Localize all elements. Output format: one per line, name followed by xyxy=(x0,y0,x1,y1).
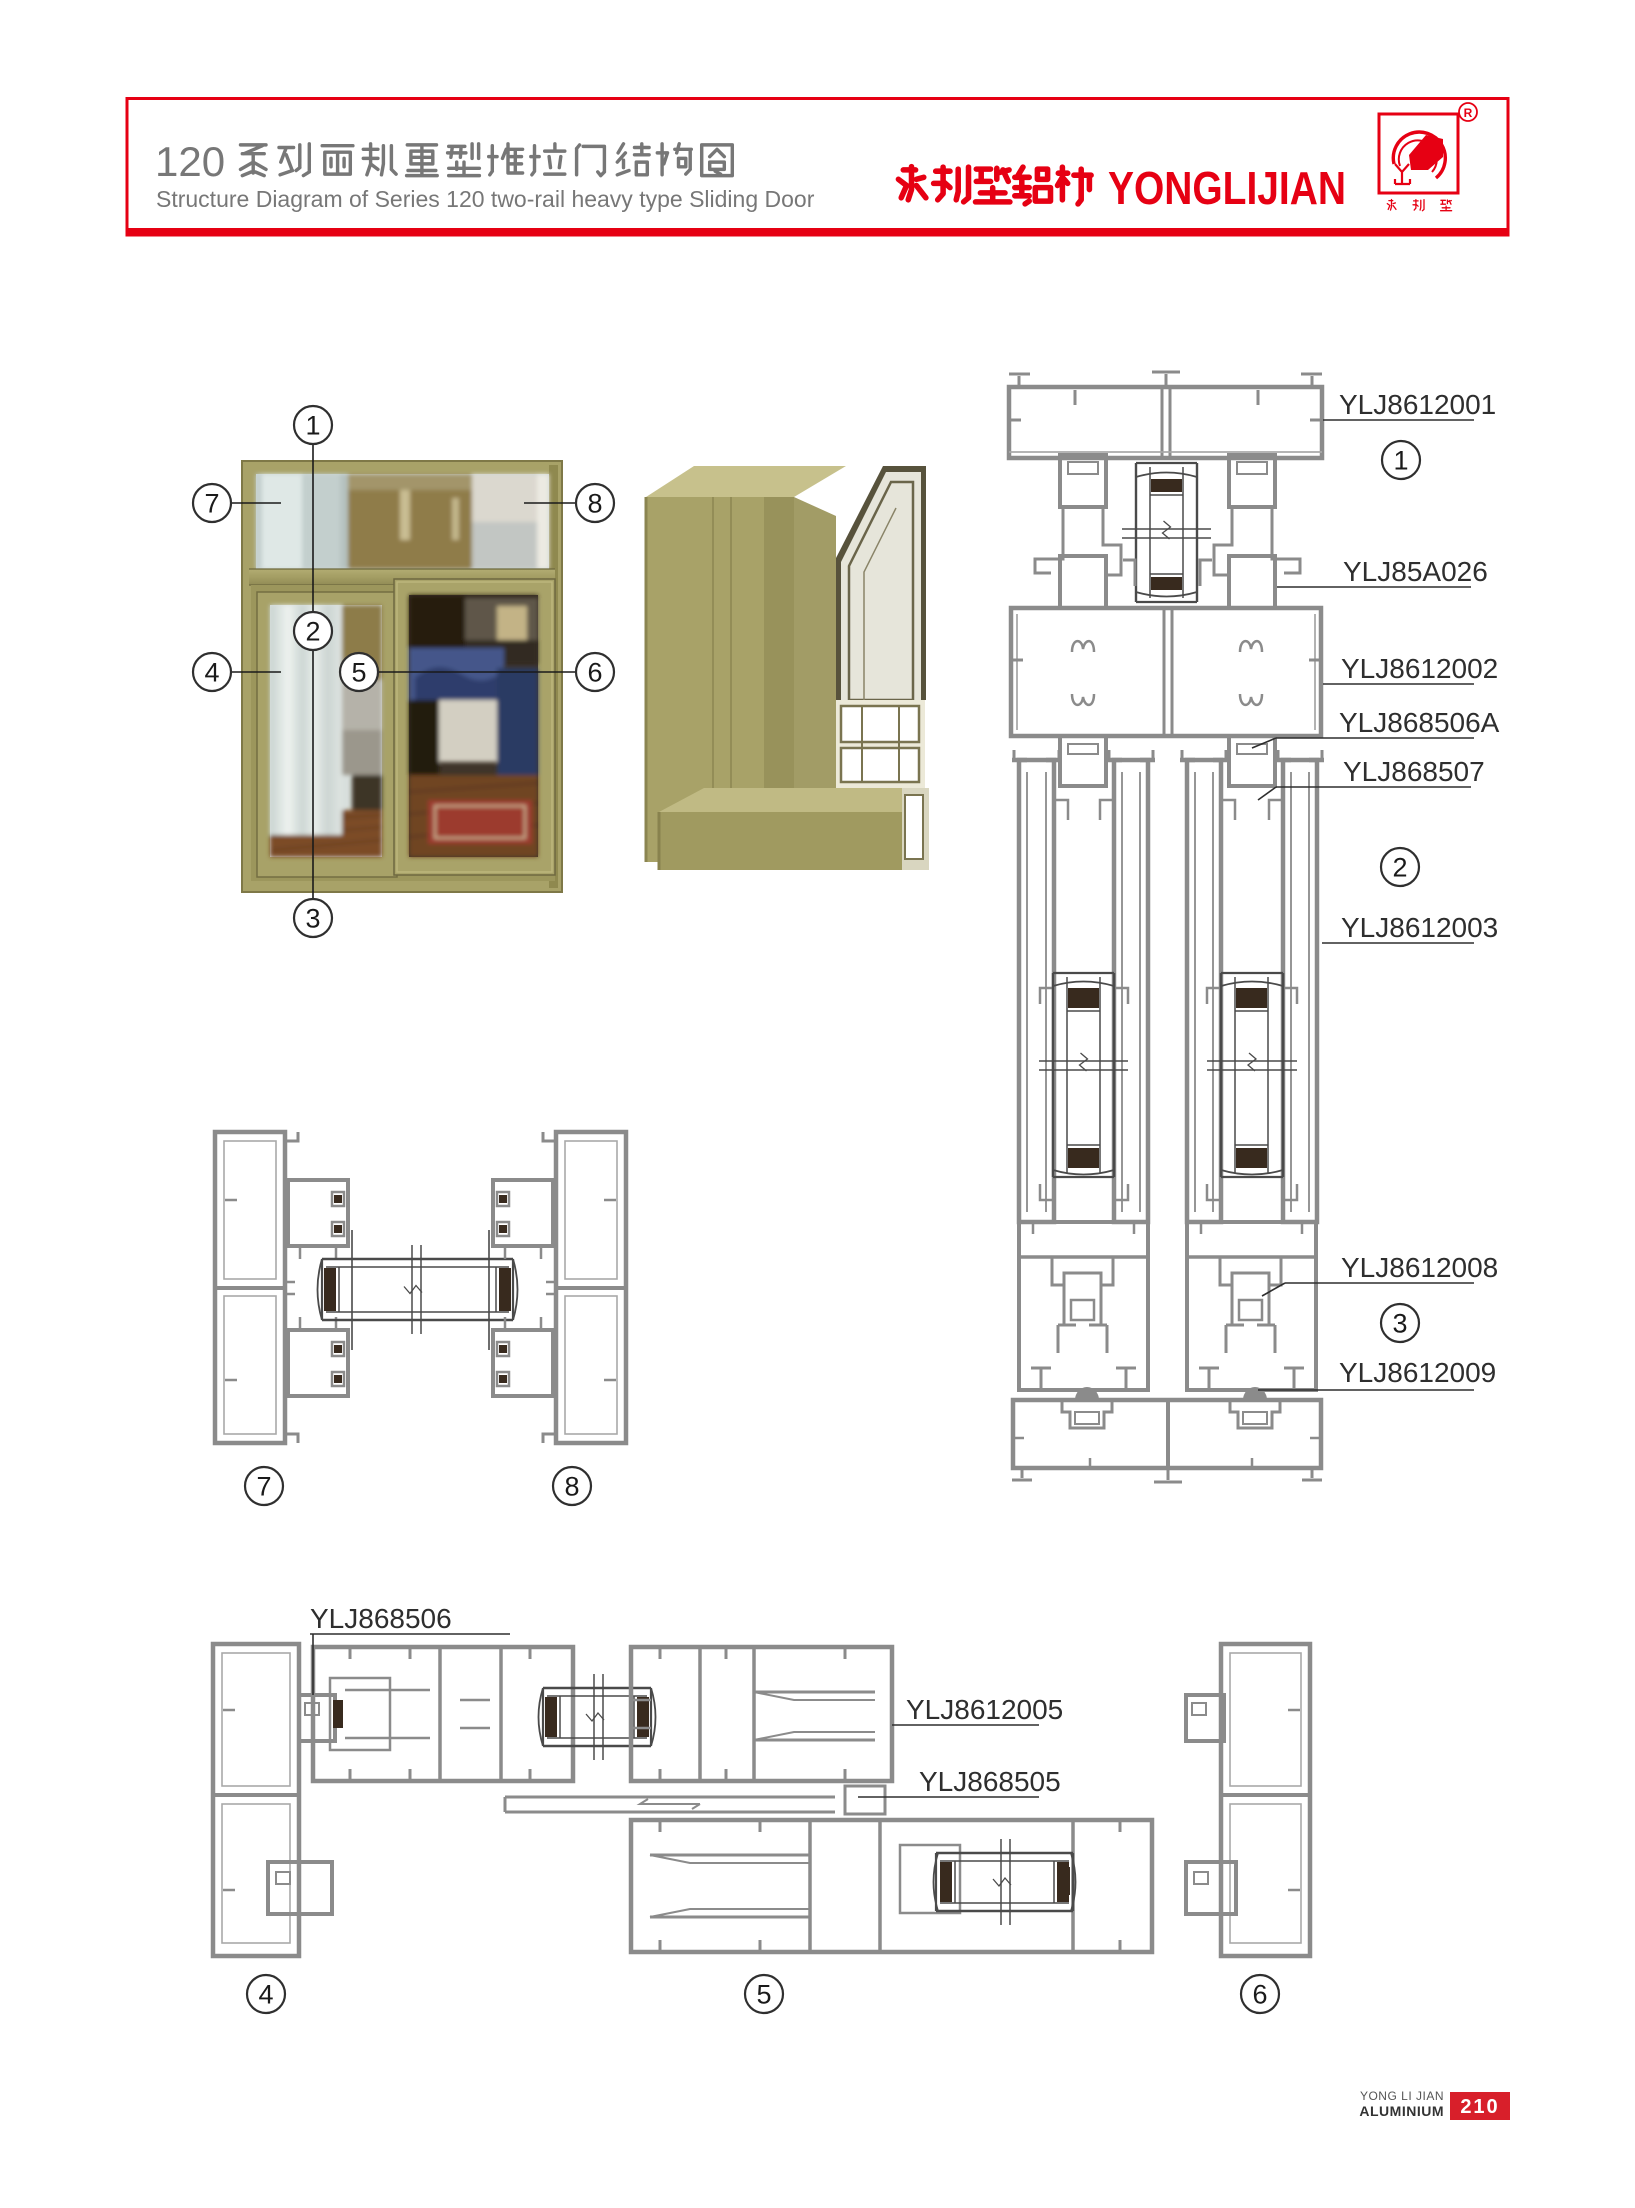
svg-text:YLJ8612003: YLJ8612003 xyxy=(1341,912,1498,943)
svg-text:YLJ85A026: YLJ85A026 xyxy=(1343,556,1488,587)
svg-text:3: 3 xyxy=(1392,1308,1407,1338)
svg-text:ALUMINIUM: ALUMINIUM xyxy=(1359,2103,1444,2119)
svg-text:YLJ8612009: YLJ8612009 xyxy=(1339,1357,1496,1388)
svg-text:5: 5 xyxy=(351,657,366,687)
svg-text:2: 2 xyxy=(305,616,320,646)
svg-text:Structure Diagram of Series 12: Structure Diagram of Series 120 two-rail… xyxy=(156,186,815,212)
svg-text:YLJ8612005: YLJ8612005 xyxy=(906,1694,1063,1725)
svg-text:YLJ8612002: YLJ8612002 xyxy=(1341,653,1498,684)
svg-text:R: R xyxy=(1464,106,1473,120)
svg-text:1: 1 xyxy=(1393,445,1408,475)
svg-text:5: 5 xyxy=(756,1979,771,2009)
svg-text:6: 6 xyxy=(587,657,602,687)
svg-text:210: 210 xyxy=(1460,2096,1499,2118)
svg-text:7: 7 xyxy=(256,1471,271,1501)
svg-text:YLJ868507: YLJ868507 xyxy=(1343,756,1485,787)
svg-text:7: 7 xyxy=(204,488,219,518)
svg-text:2: 2 xyxy=(1392,852,1407,882)
svg-text:8: 8 xyxy=(564,1471,579,1501)
svg-text:4: 4 xyxy=(204,657,219,687)
svg-text:120: 120 xyxy=(155,138,225,185)
svg-text:8: 8 xyxy=(587,488,602,518)
svg-text:YLJ868505: YLJ868505 xyxy=(919,1766,1061,1797)
svg-text:YONGLIJIAN: YONGLIJIAN xyxy=(1108,162,1346,214)
svg-text:YLJ8612001: YLJ8612001 xyxy=(1339,389,1496,420)
svg-text:YLJ868506: YLJ868506 xyxy=(310,1603,452,1634)
svg-text:6: 6 xyxy=(1252,1979,1267,2009)
svg-text:YONG LI JIAN: YONG LI JIAN xyxy=(1360,2089,1444,2103)
svg-text:YLJ8612008: YLJ8612008 xyxy=(1341,1252,1498,1283)
svg-text:4: 4 xyxy=(258,1979,273,2009)
svg-text:3: 3 xyxy=(305,903,320,933)
svg-text:YLJ868506A: YLJ868506A xyxy=(1339,707,1500,738)
svg-text:1: 1 xyxy=(305,410,320,440)
